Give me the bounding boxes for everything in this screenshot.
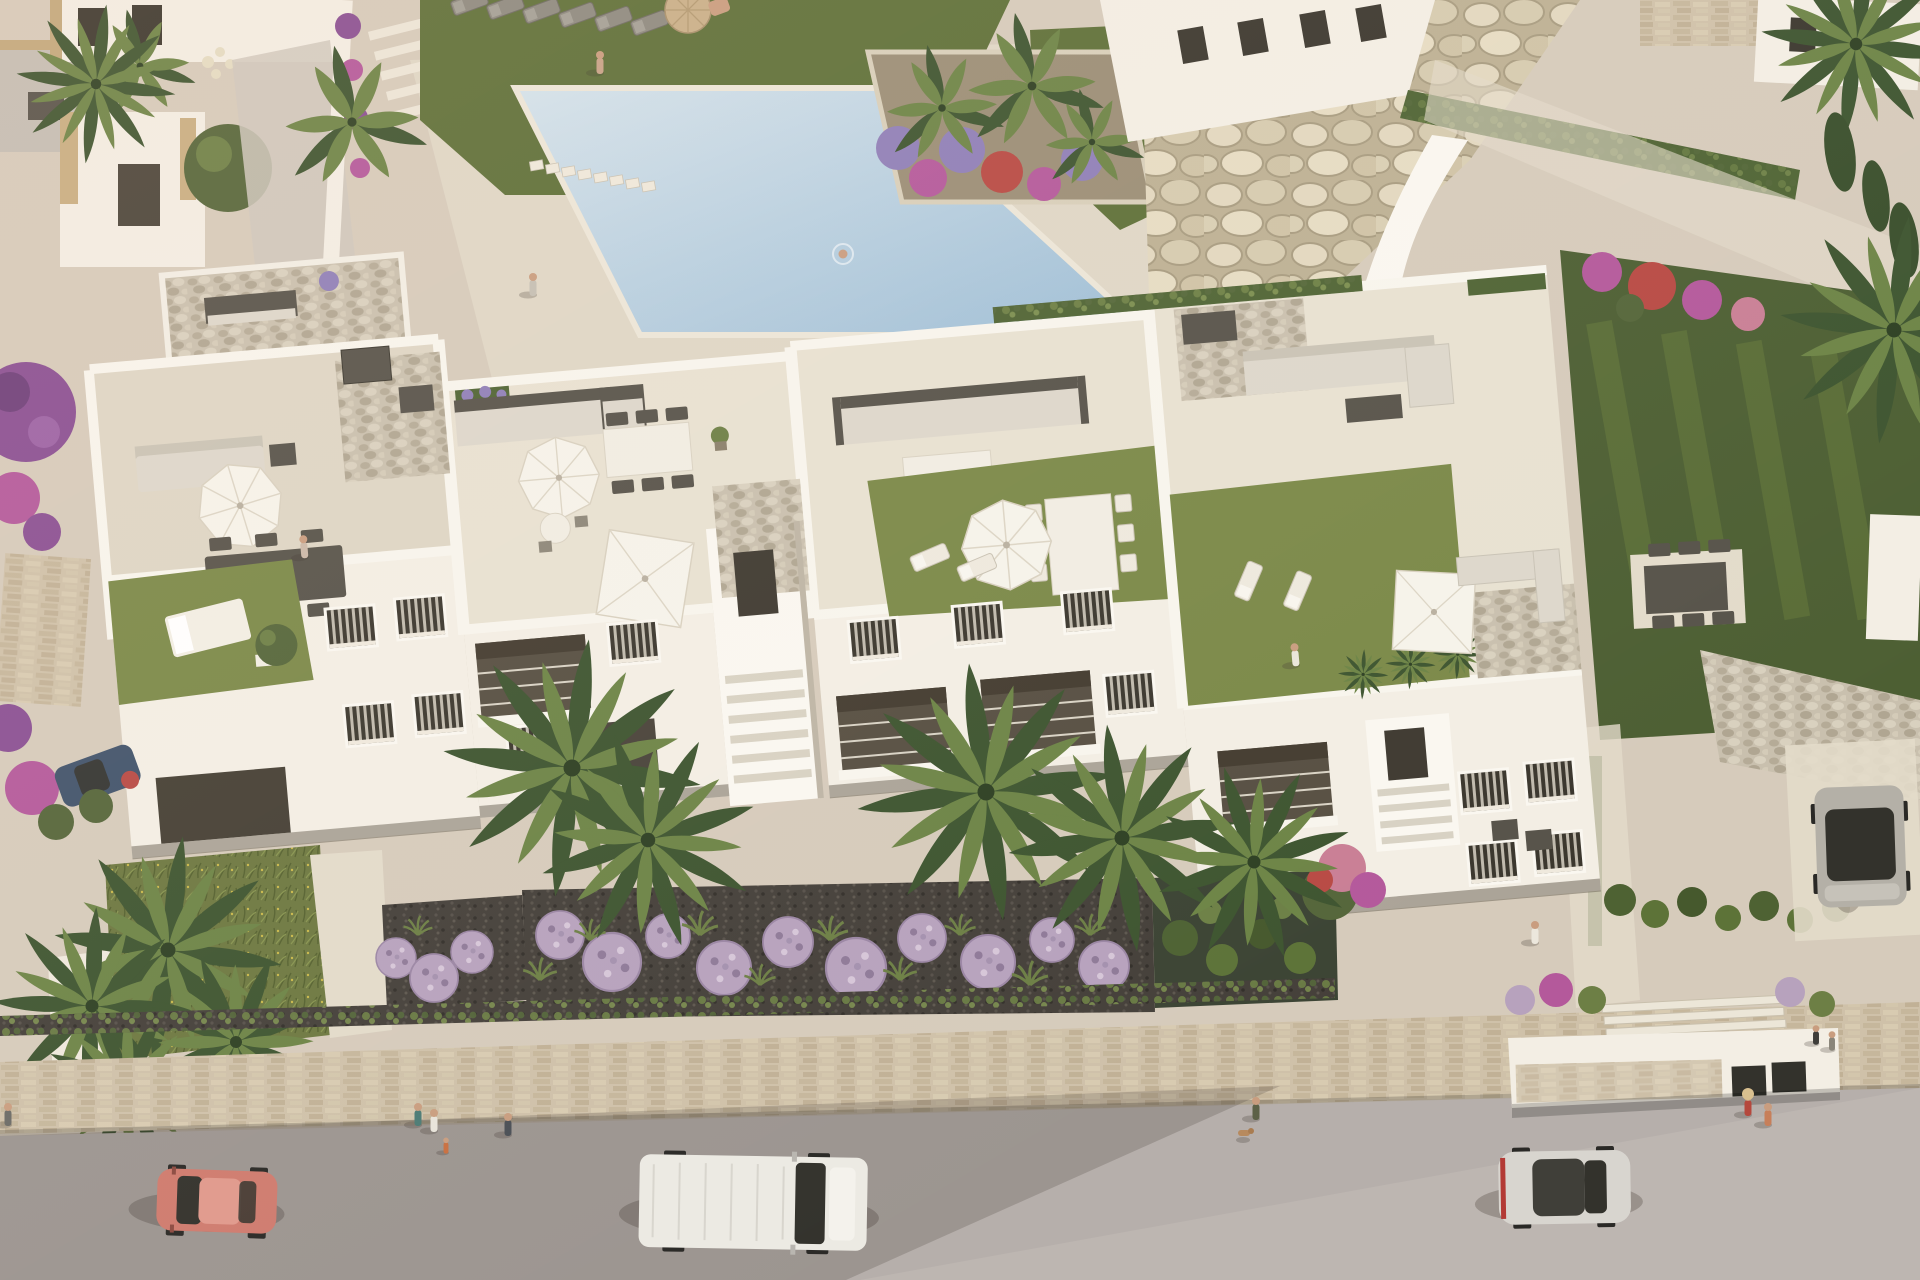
warm-light-overlay: [0, 0, 1920, 1280]
scene-canvas: [0, 0, 1920, 1280]
aerial-render-image: [0, 0, 1920, 1280]
